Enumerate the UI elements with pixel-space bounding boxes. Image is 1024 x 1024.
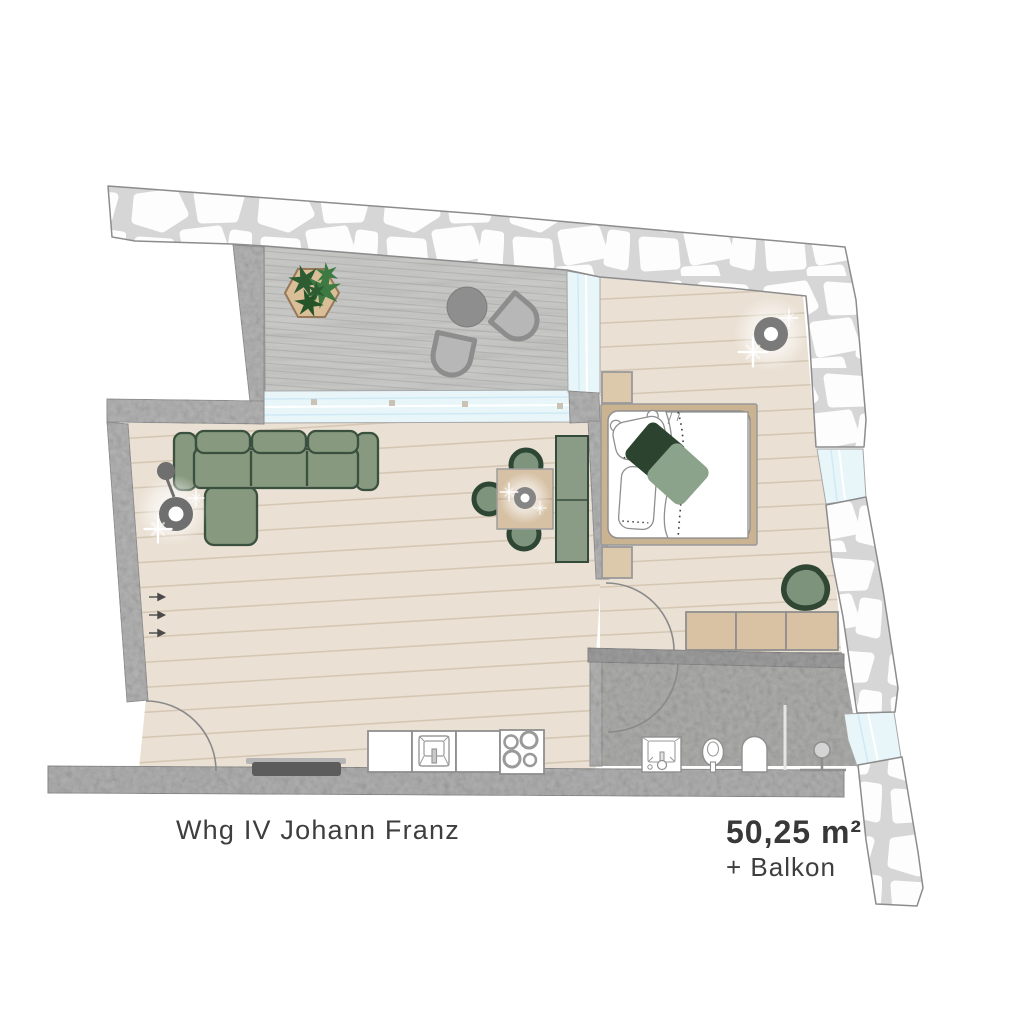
nightstand-top: [602, 372, 632, 403]
stone-wall-right-bottom: [858, 757, 923, 906]
apartment-label: Whg IV Johann Franz: [176, 815, 460, 845]
bath-sink: [642, 737, 681, 772]
window-right-upper: [817, 449, 866, 504]
balcony-table: [447, 287, 487, 327]
area-extra-label: + Balkon: [726, 852, 836, 882]
shower-niche: [742, 737, 767, 773]
glass-wall-living-balcony: [263, 390, 570, 423]
area-label: 50,25 m²: [726, 814, 862, 850]
wardrobe: [556, 436, 588, 562]
ceiling-lamp: [733, 296, 809, 372]
floor-plan-svg: Whg IV Johann Franz 50,25 m² + Balkon: [0, 0, 1024, 1024]
tv-sideboard: [246, 758, 346, 776]
pendant-lamp: [499, 472, 551, 524]
window-balcony-bedroom: [567, 271, 600, 393]
nightstand-bottom: [602, 547, 632, 578]
toilet: [703, 739, 724, 773]
double-bed: [601, 404, 757, 545]
floor-plan-canvas: Whg IV Johann Franz 50,25 m² + Balkon: [0, 0, 1024, 1024]
dresser: [686, 612, 838, 650]
